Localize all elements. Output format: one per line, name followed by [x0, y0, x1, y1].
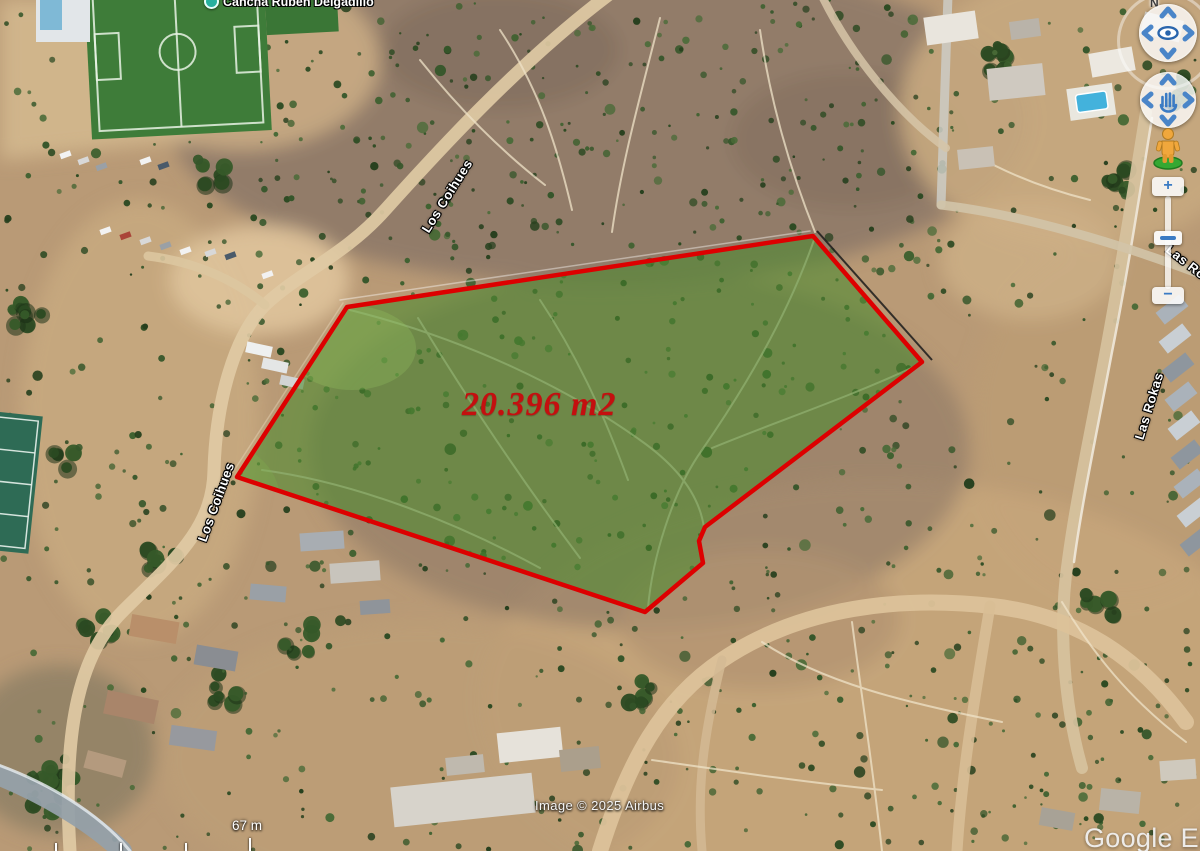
look-up-arrow — [1162, 9, 1174, 16]
poi-dot-icon[interactable] — [204, 0, 219, 9]
parcel-area-label: 20.396 m2 — [462, 386, 616, 424]
scale-tick — [120, 843, 122, 851]
look-right-arrow — [1185, 27, 1192, 39]
imagery-attribution: Image © 2025 Airbus — [535, 798, 664, 813]
move-right-arrow — [1185, 94, 1192, 106]
building — [1099, 788, 1141, 814]
scale-tick — [55, 843, 57, 851]
building — [986, 63, 1045, 101]
building — [249, 583, 286, 602]
building — [329, 560, 380, 583]
hand-icon — [1161, 94, 1176, 112]
zoom-slider-thumb[interactable] — [1154, 231, 1182, 245]
scale-tick — [249, 838, 251, 851]
google-earth-watermark: Google Earth — [1084, 823, 1200, 851]
building — [299, 530, 344, 551]
satellite-imagery — [0, 0, 1200, 851]
move-down-arrow — [1162, 117, 1174, 124]
look-joystick[interactable] — [1139, 4, 1197, 62]
building — [360, 599, 391, 615]
look-left-arrow — [1144, 27, 1151, 39]
building — [1159, 759, 1196, 781]
look-down-arrow — [1162, 50, 1174, 57]
eye-icon — [1159, 27, 1178, 39]
map-viewport[interactable]: Cancha Rubén Delgadillo Los Coihues Los … — [0, 0, 1200, 851]
scale-tick — [185, 843, 187, 851]
building — [559, 746, 601, 772]
pool — [1066, 83, 1116, 121]
pegman-street-view[interactable] — [1150, 126, 1186, 170]
building — [957, 146, 995, 170]
move-left-arrow — [1144, 94, 1151, 106]
zoom-out-button[interactable]: − — [1152, 287, 1184, 304]
move-up-arrow — [1162, 76, 1174, 83]
scale-label: 67 m — [232, 818, 262, 833]
move-joystick[interactable] — [1140, 72, 1196, 128]
poi-marker[interactable]: Cancha Rubén Delgadillo — [204, 0, 374, 9]
poi-label: Cancha Rubén Delgadillo — [223, 0, 374, 9]
zoom-in-button[interactable]: + — [1152, 177, 1184, 196]
